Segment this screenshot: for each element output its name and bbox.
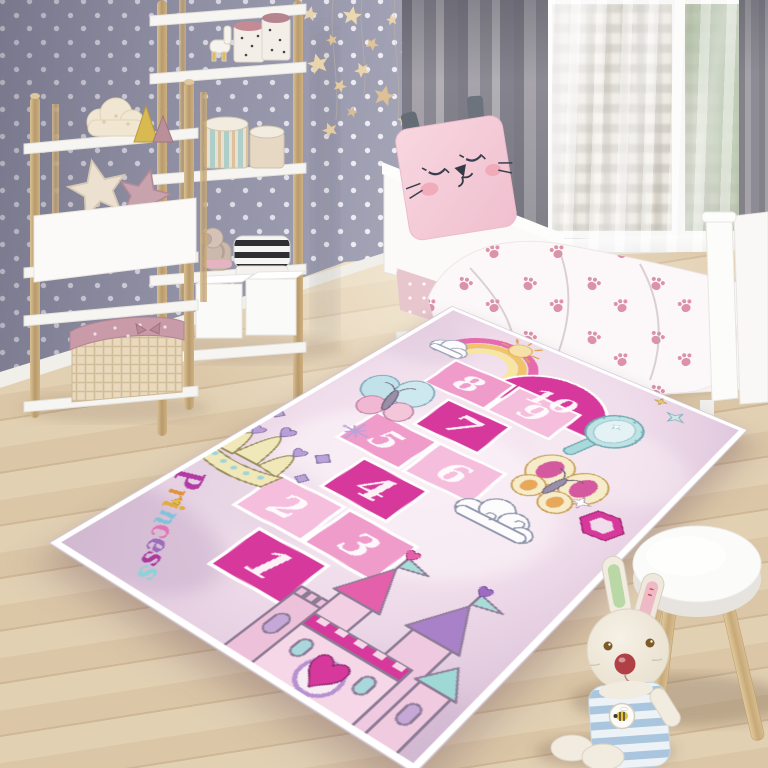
bunny-foot (582, 744, 624, 768)
bedroom-photo: 10 9 8 7 6 5 4 3 2 1 (0, 0, 768, 768)
bunny-eye-icon (646, 639, 655, 648)
foreground-layer (0, 0, 768, 768)
bunny-eye-icon (604, 642, 613, 651)
bunny-nose-icon (615, 654, 636, 675)
bunny-plush (551, 555, 684, 768)
bee-badge-icon (610, 704, 635, 729)
bunny-head (587, 609, 669, 691)
